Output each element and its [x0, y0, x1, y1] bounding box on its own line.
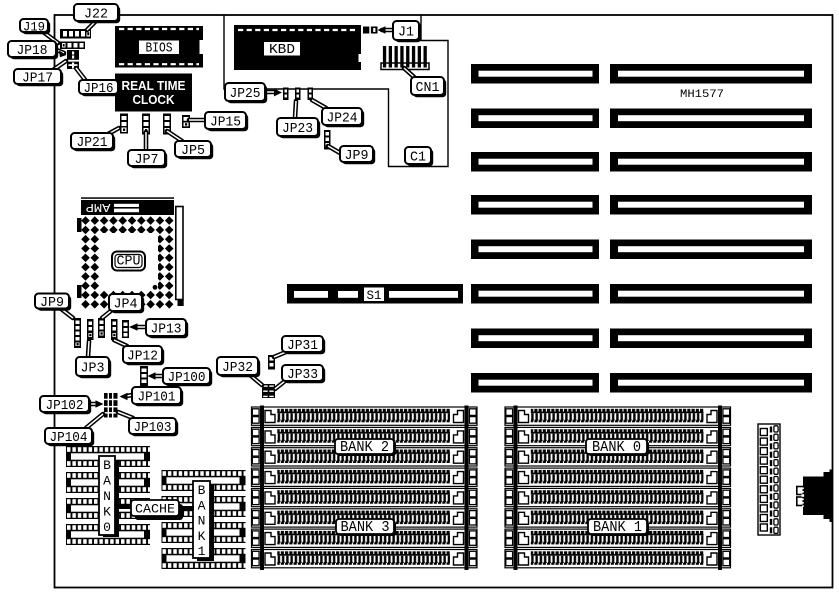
svg-text:BIOS: BIOS	[146, 41, 173, 57]
svg-text:A: A	[103, 474, 111, 489]
svg-text:B: B	[198, 483, 206, 498]
svg-text:JP33: JP33	[287, 367, 318, 383]
svg-text:AMP: AMP	[85, 200, 110, 213]
svg-text:JP9: JP9	[40, 295, 64, 311]
svg-text:N: N	[103, 489, 111, 504]
svg-text:1: 1	[198, 544, 206, 559]
svg-text:J19: J19	[23, 19, 45, 34]
svg-text:JP5: JP5	[181, 143, 205, 159]
svg-text:N: N	[198, 514, 206, 529]
svg-text:JP103: JP103	[134, 420, 172, 436]
svg-text:0: 0	[103, 520, 111, 535]
svg-text:KBD: KBD	[269, 42, 295, 58]
svg-text:C1: C1	[410, 149, 426, 165]
svg-text:BANK 2: BANK 2	[340, 440, 389, 456]
svg-text:JP16: JP16	[84, 81, 114, 97]
svg-text:S1: S1	[367, 288, 382, 303]
svg-text:JP9: JP9	[345, 148, 369, 164]
svg-text:JP21: JP21	[77, 135, 108, 151]
svg-text:JP32: JP32	[222, 360, 253, 376]
svg-text:JP100: JP100	[168, 370, 206, 386]
svg-text:JP18: JP18	[17, 43, 48, 59]
svg-text:JP101: JP101	[138, 389, 176, 405]
svg-text:JP25: JP25	[230, 86, 261, 102]
svg-text:JP23: JP23	[282, 121, 313, 137]
svg-text:J1: J1	[398, 24, 414, 40]
svg-text:K: K	[103, 505, 111, 520]
svg-text:BANK 1: BANK 1	[593, 520, 642, 536]
svg-text:JP12: JP12	[127, 348, 158, 364]
svg-text:K: K	[198, 529, 206, 544]
svg-text:JP31: JP31	[287, 338, 318, 354]
svg-text:JP13: JP13	[151, 321, 182, 337]
svg-text:REAL TIME: REAL TIME	[122, 79, 186, 93]
svg-text:JP4: JP4	[114, 296, 138, 312]
svg-text:J22: J22	[84, 6, 108, 22]
svg-text:BANK 3: BANK 3	[341, 520, 390, 536]
svg-text:BANK 0: BANK 0	[592, 440, 641, 456]
svg-text:JP7: JP7	[135, 152, 159, 168]
svg-text:CPU: CPU	[117, 255, 141, 270]
svg-text:JP24: JP24	[327, 110, 358, 126]
svg-text:CLOCK: CLOCK	[133, 93, 175, 107]
svg-text:B: B	[103, 458, 111, 473]
svg-text:JP102: JP102	[46, 398, 84, 414]
svg-text:A: A	[198, 498, 206, 513]
svg-text:JP3: JP3	[81, 360, 105, 376]
svg-text:CN1: CN1	[416, 80, 440, 96]
svg-text:CACHE: CACHE	[135, 502, 175, 517]
svg-text:MH1577: MH1577	[680, 89, 724, 101]
svg-text:JP104: JP104	[50, 430, 88, 446]
svg-text:JP17: JP17	[22, 70, 53, 86]
svg-text:JP15: JP15	[210, 114, 241, 130]
